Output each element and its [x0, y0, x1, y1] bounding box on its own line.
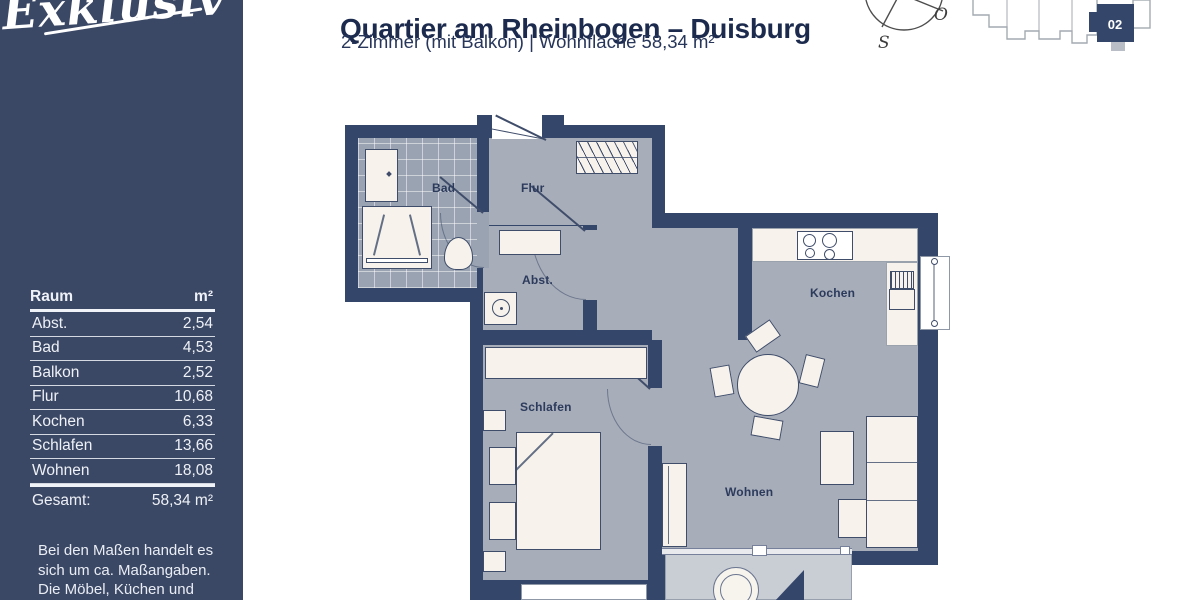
shower-tray — [366, 258, 428, 263]
kitchen-window-line — [933, 260, 935, 326]
room-label-flur: Flur — [521, 181, 544, 195]
flur-corridor-floor — [597, 225, 652, 330]
nightstand — [483, 410, 506, 431]
fridge-vent — [890, 271, 914, 289]
dining-table — [737, 354, 799, 416]
room-label-bad: Bad — [432, 181, 455, 195]
toilet — [444, 237, 473, 270]
room-label-abst: Abst. — [522, 273, 553, 287]
nightstand — [483, 551, 506, 572]
storage-shelf — [499, 230, 561, 255]
wall-pillar — [477, 115, 492, 139]
glass-door-handle — [752, 545, 767, 556]
glass-door-handle — [840, 546, 850, 555]
bedroom-wardrobe — [485, 347, 647, 379]
corridor-right-floor — [652, 228, 738, 340]
bed-pillow — [489, 502, 516, 540]
bathroom-cabinet — [365, 149, 398, 202]
side-table — [820, 431, 854, 485]
sofa — [866, 416, 918, 548]
cooktop-burner — [803, 234, 816, 247]
expose-page: Exklusiv® Raum m² Abst. 2,54 Bad 4,53 Ba… — [0, 0, 1200, 600]
room-label-kochen: Kochen — [810, 286, 855, 300]
sofa-seam — [867, 462, 917, 463]
bed-pillow — [489, 447, 516, 485]
tv-lowboard — [662, 463, 687, 547]
floor-plan: Bad Flur Abst. Kochen Schlafen Wohnen — [0, 0, 1200, 600]
room-label-wohnen: Wohnen — [725, 485, 773, 499]
bedroom-window — [521, 584, 647, 600]
bed — [516, 432, 601, 550]
sofa-seam — [867, 500, 917, 501]
window-handle — [931, 258, 938, 265]
tv-lowboard-line — [668, 466, 669, 544]
kitchen-window — [920, 256, 950, 330]
balcony-table-ring — [720, 574, 752, 600]
window-handle — [931, 320, 938, 327]
room-label-schlafen: Schlafen — [520, 400, 572, 414]
fridge-body — [889, 289, 915, 310]
cooktop-burner — [822, 233, 837, 248]
hall-wardrobe-line — [577, 157, 637, 158]
cooktop-burner — [805, 248, 815, 258]
cooktop-burner — [824, 249, 835, 260]
washing-machine-dot — [500, 307, 503, 310]
